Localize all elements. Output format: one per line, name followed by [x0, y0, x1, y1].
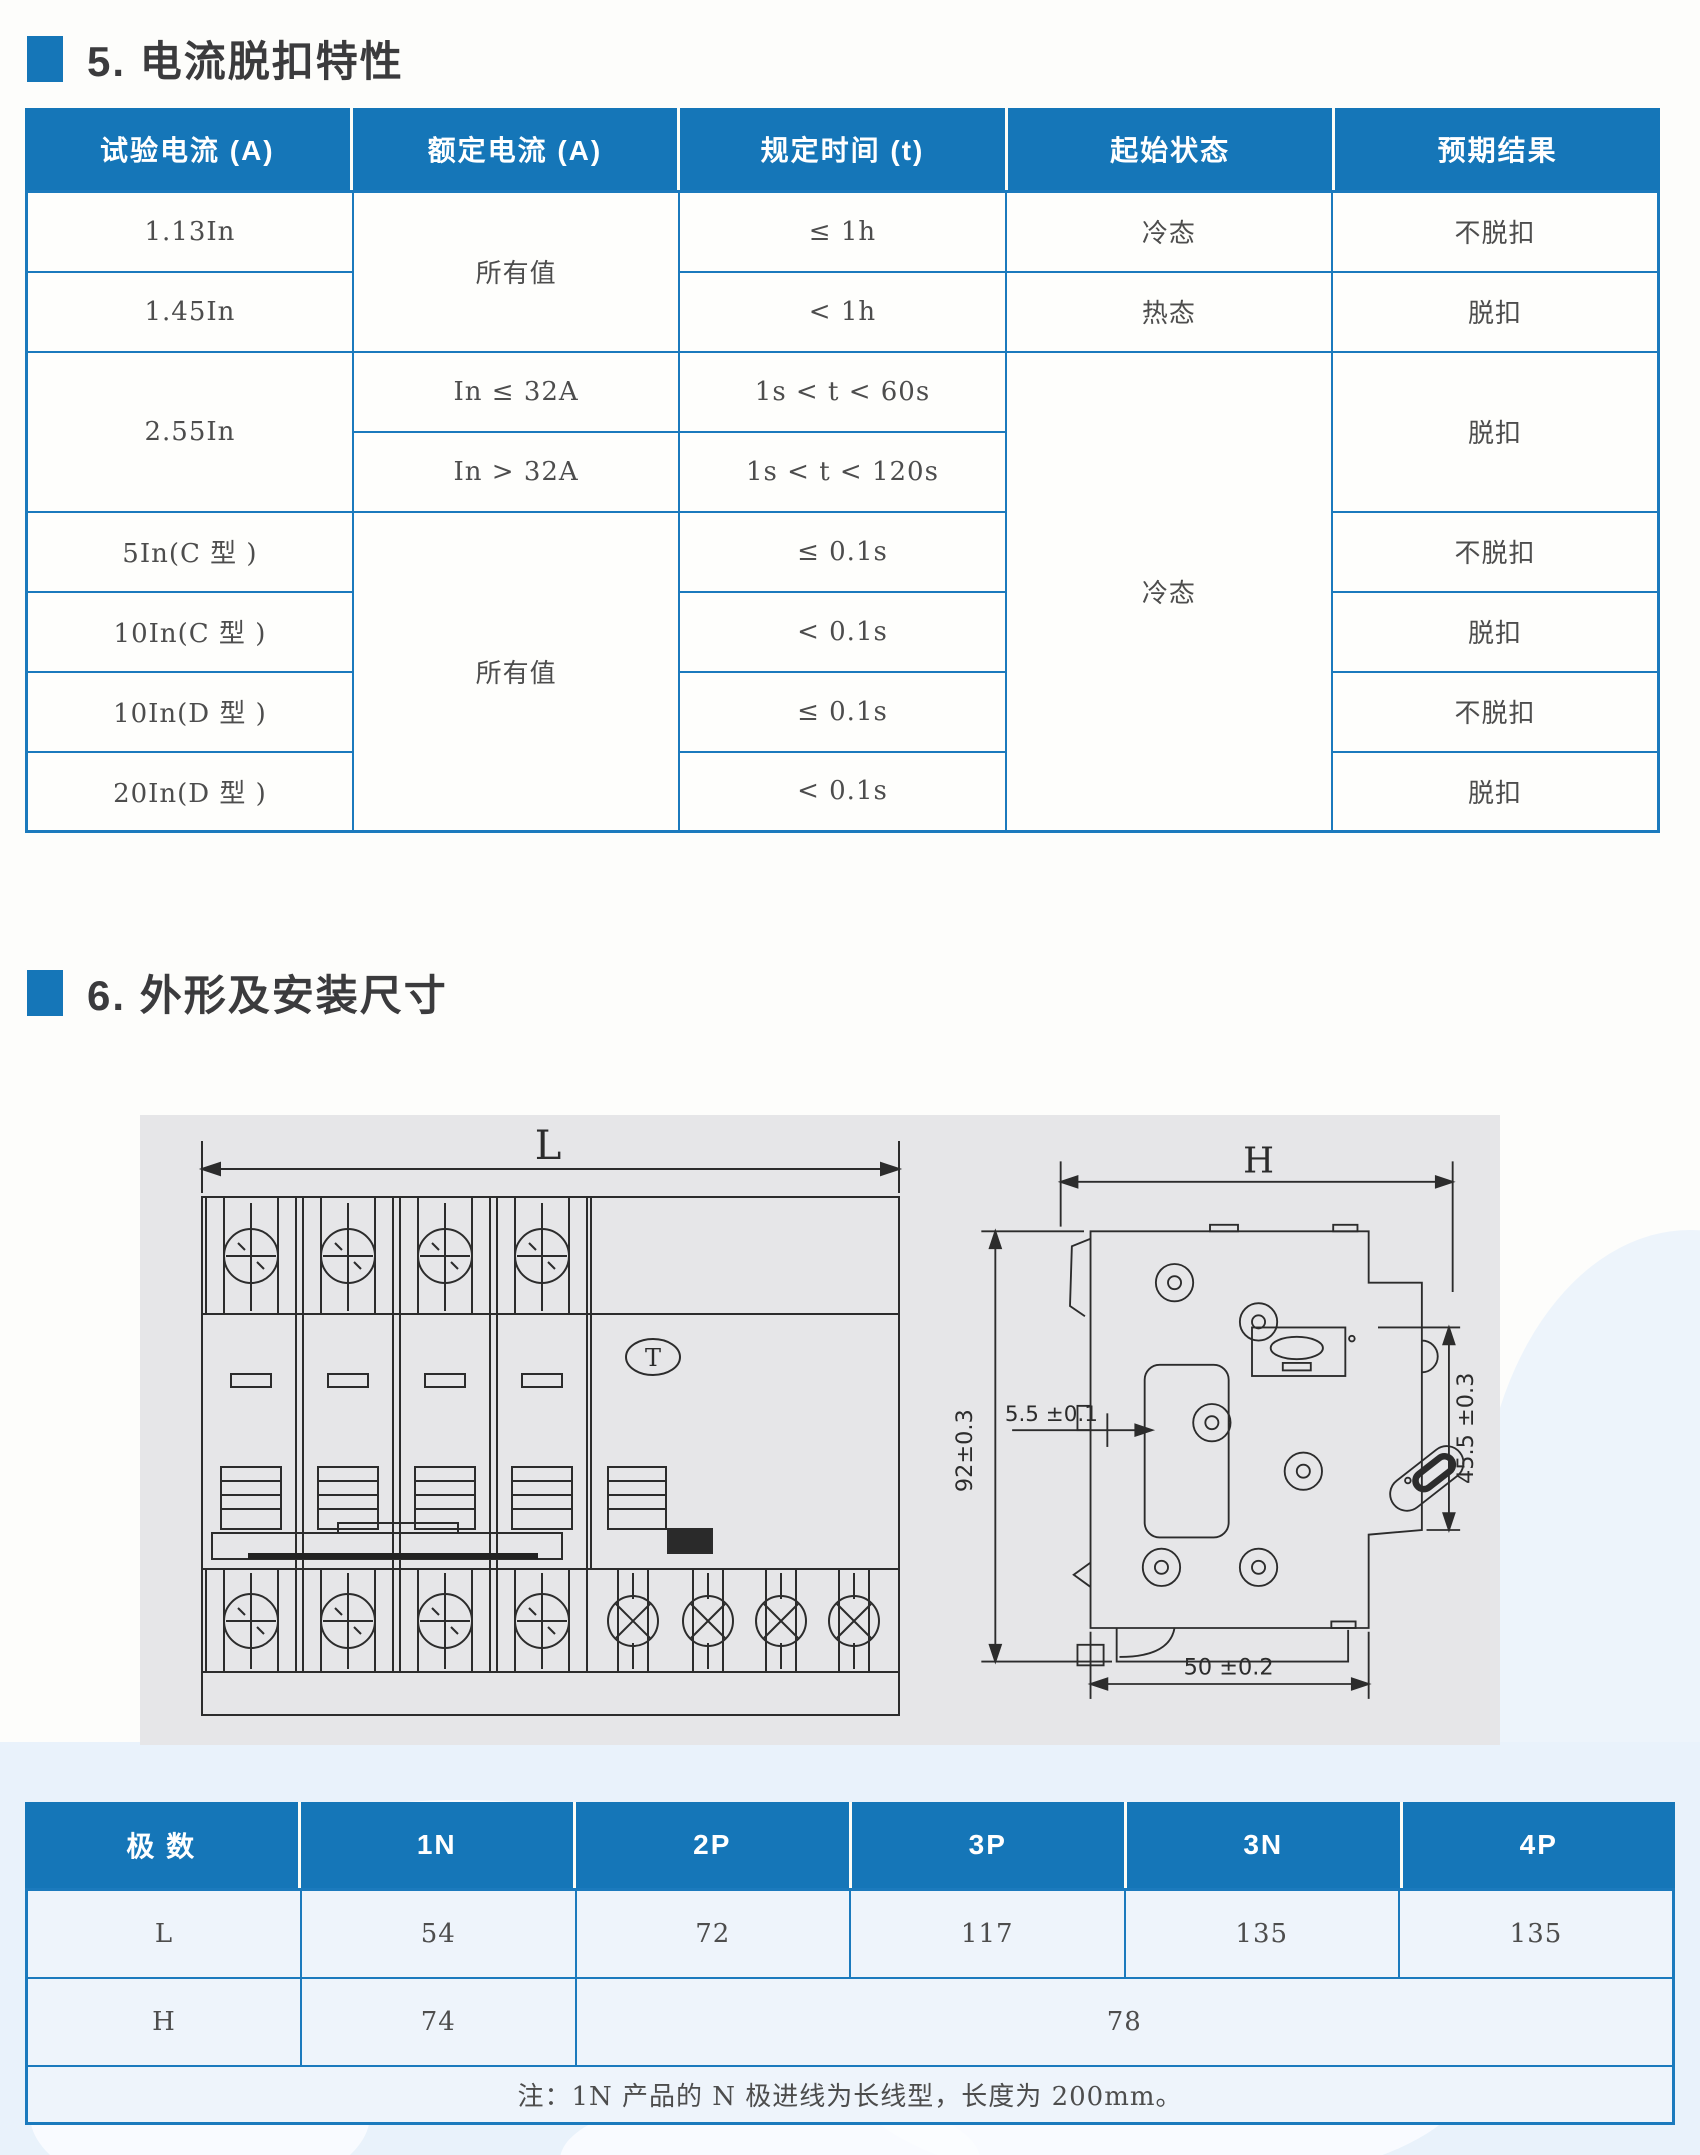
cell-rated-current: 所有值	[353, 512, 679, 832]
table-row-L: L 54 72 117 135 135	[27, 1890, 1674, 1978]
pole-table-header: 极 数 1N 2P 3P 3N 4P	[25, 1802, 1675, 1888]
dim-label-50: 50 ±0.2	[1184, 1655, 1274, 1681]
pole-header-2p: 2P	[576, 1802, 849, 1888]
cell-result: 不脱扣	[1332, 672, 1658, 752]
cell-time: 1s < t < 60s	[679, 352, 1005, 432]
cell-L-3n: 135	[1125, 1890, 1400, 1978]
cell-result: 脱扣	[1332, 352, 1658, 512]
section5-title: 5. 电流脱扣特性	[87, 28, 404, 89]
table-row: 1.45In < 1h 热态 脱扣	[27, 272, 1659, 352]
cell-L-4p: 135	[1399, 1890, 1674, 1978]
breaker-front-view-drawing: T	[188, 1129, 913, 1734]
test-button: T	[626, 1339, 680, 1375]
pole-header-3n: 3N	[1127, 1802, 1400, 1888]
cell-result: 脱扣	[1332, 592, 1658, 672]
table-row: 10In(D 型 ) ≤ 0.1s 不脱扣	[27, 672, 1659, 752]
cell-rated-current: In > 32A	[353, 432, 679, 512]
cell-time: 1s < t < 120s	[679, 432, 1005, 512]
dimension-drawing-panel: T	[140, 1115, 1500, 1745]
cell-time: ≤ 1h	[679, 192, 1005, 272]
cell-test-current: 10In(D 型 )	[27, 672, 353, 752]
cell-rated-current: 所有值	[353, 192, 679, 352]
cell-L-1n: 54	[301, 1890, 576, 1978]
cell-L-3p: 117	[850, 1890, 1125, 1978]
section5-bullet-icon	[27, 36, 63, 82]
datasheet-page: 5. 电流脱扣特性 试验电流 (A) 额定电流 (A) 规定时间 (t) 起始状…	[0, 0, 1700, 2155]
table-row: 5In(C 型 ) 所有值 ≤ 0.1s 不脱扣	[27, 512, 1659, 592]
pole-header-4p: 4P	[1403, 1802, 1676, 1888]
trip-table: 1.13In 所有值 ≤ 1h 冷态 不脱扣 1.45In < 1h 热态 脱扣…	[25, 190, 1660, 830]
table-row: 1.13In 所有值 ≤ 1h 冷态 不脱扣	[27, 192, 1659, 272]
pole-table: L 54 72 117 135 135 H 74 78 注：1N 产品的 N 极…	[25, 1888, 1675, 2122]
breaker-side-view-drawing: H 92±0.3 45.5 ±0.3 5.5 ±0.1 50 ±0.2	[930, 1123, 1490, 1741]
table-row: 10In(C 型 ) < 0.1s 脱扣	[27, 592, 1659, 672]
section5-header: 5. 电流脱扣特性	[27, 28, 404, 89]
cell-state: 冷态	[1006, 352, 1332, 832]
dim-label-H: H	[1243, 1141, 1274, 1182]
cell-time: < 1h	[679, 272, 1005, 352]
table-row-H: H 74 78	[27, 1978, 1674, 2066]
cell-time: < 0.1s	[679, 592, 1005, 672]
cell-time: ≤ 0.1s	[679, 512, 1005, 592]
cell-H-rest: 78	[576, 1978, 1674, 2066]
trip-header-initial-state: 起始状态	[1008, 108, 1333, 190]
svg-text:T: T	[645, 1344, 661, 1372]
cell-time: ≤ 0.1s	[679, 672, 1005, 752]
pole-header-poles: 极 数	[25, 1802, 298, 1888]
trip-table-header: 试验电流 (A) 额定电流 (A) 规定时间 (t) 起始状态 预期结果	[25, 108, 1660, 190]
cell-result: 脱扣	[1332, 752, 1658, 832]
cell-test-current: 1.13In	[27, 192, 353, 272]
table-row-note: 注：1N 产品的 N 极进线为长线型，长度为 200mm。	[27, 2066, 1674, 2124]
dim-label-45-5: 45.5 ±0.3	[1453, 1373, 1479, 1484]
cell-state: 热态	[1006, 272, 1332, 352]
note-text: 注：1N 产品的 N 极进线为长线型，长度为 200mm。	[27, 2066, 1674, 2124]
cell-result: 不脱扣	[1332, 512, 1658, 592]
cell-test-current: 2.55In	[27, 352, 353, 512]
trip-header-expected-result: 预期结果	[1335, 108, 1660, 190]
cell-H-1n: 74	[301, 1978, 576, 2066]
trip-header-rated-current: 额定电流 (A)	[353, 108, 678, 190]
cell-time: < 0.1s	[679, 752, 1005, 832]
cell-state: 冷态	[1006, 192, 1332, 272]
cell-row-label: L	[27, 1890, 302, 1978]
bottom-terminal-screws	[224, 1573, 569, 1669]
cell-test-current: 20In(D 型 )	[27, 752, 353, 832]
cell-result: 脱扣	[1332, 272, 1658, 352]
cell-test-current: 10In(C 型 )	[27, 592, 353, 672]
cell-rated-current: In ≤ 32A	[353, 352, 679, 432]
top-terminal-screws	[224, 1203, 569, 1311]
pole-header-3p: 3P	[852, 1802, 1125, 1888]
section6-title: 6. 外形及安装尺寸	[87, 962, 448, 1023]
dim-label-5-5: 5.5 ±0.1	[1005, 1402, 1098, 1427]
cell-test-current: 5In(C 型 )	[27, 512, 353, 592]
cell-test-current: 1.45In	[27, 272, 353, 352]
pole-header-1n: 1N	[301, 1802, 574, 1888]
cell-L-2p: 72	[576, 1890, 851, 1978]
dim-label-92: 92±0.3	[952, 1409, 978, 1492]
cell-result: 不脱扣	[1332, 192, 1658, 272]
trip-header-specified-time: 规定时间 (t)	[680, 108, 1005, 190]
section6-header: 6. 外形及安装尺寸	[27, 962, 448, 1023]
cell-row-label: H	[27, 1978, 302, 2066]
table-row: 2.55In In ≤ 32A 1s < t < 60s 冷态 脱扣	[27, 352, 1659, 432]
table-row: 20In(D 型 ) < 0.1s 脱扣	[27, 752, 1659, 832]
handle-zone	[212, 1467, 712, 1559]
trip-header-test-current: 试验电流 (A)	[25, 108, 350, 190]
dim-label-L: L	[535, 1129, 562, 1169]
section6-bullet-icon	[27, 970, 63, 1016]
